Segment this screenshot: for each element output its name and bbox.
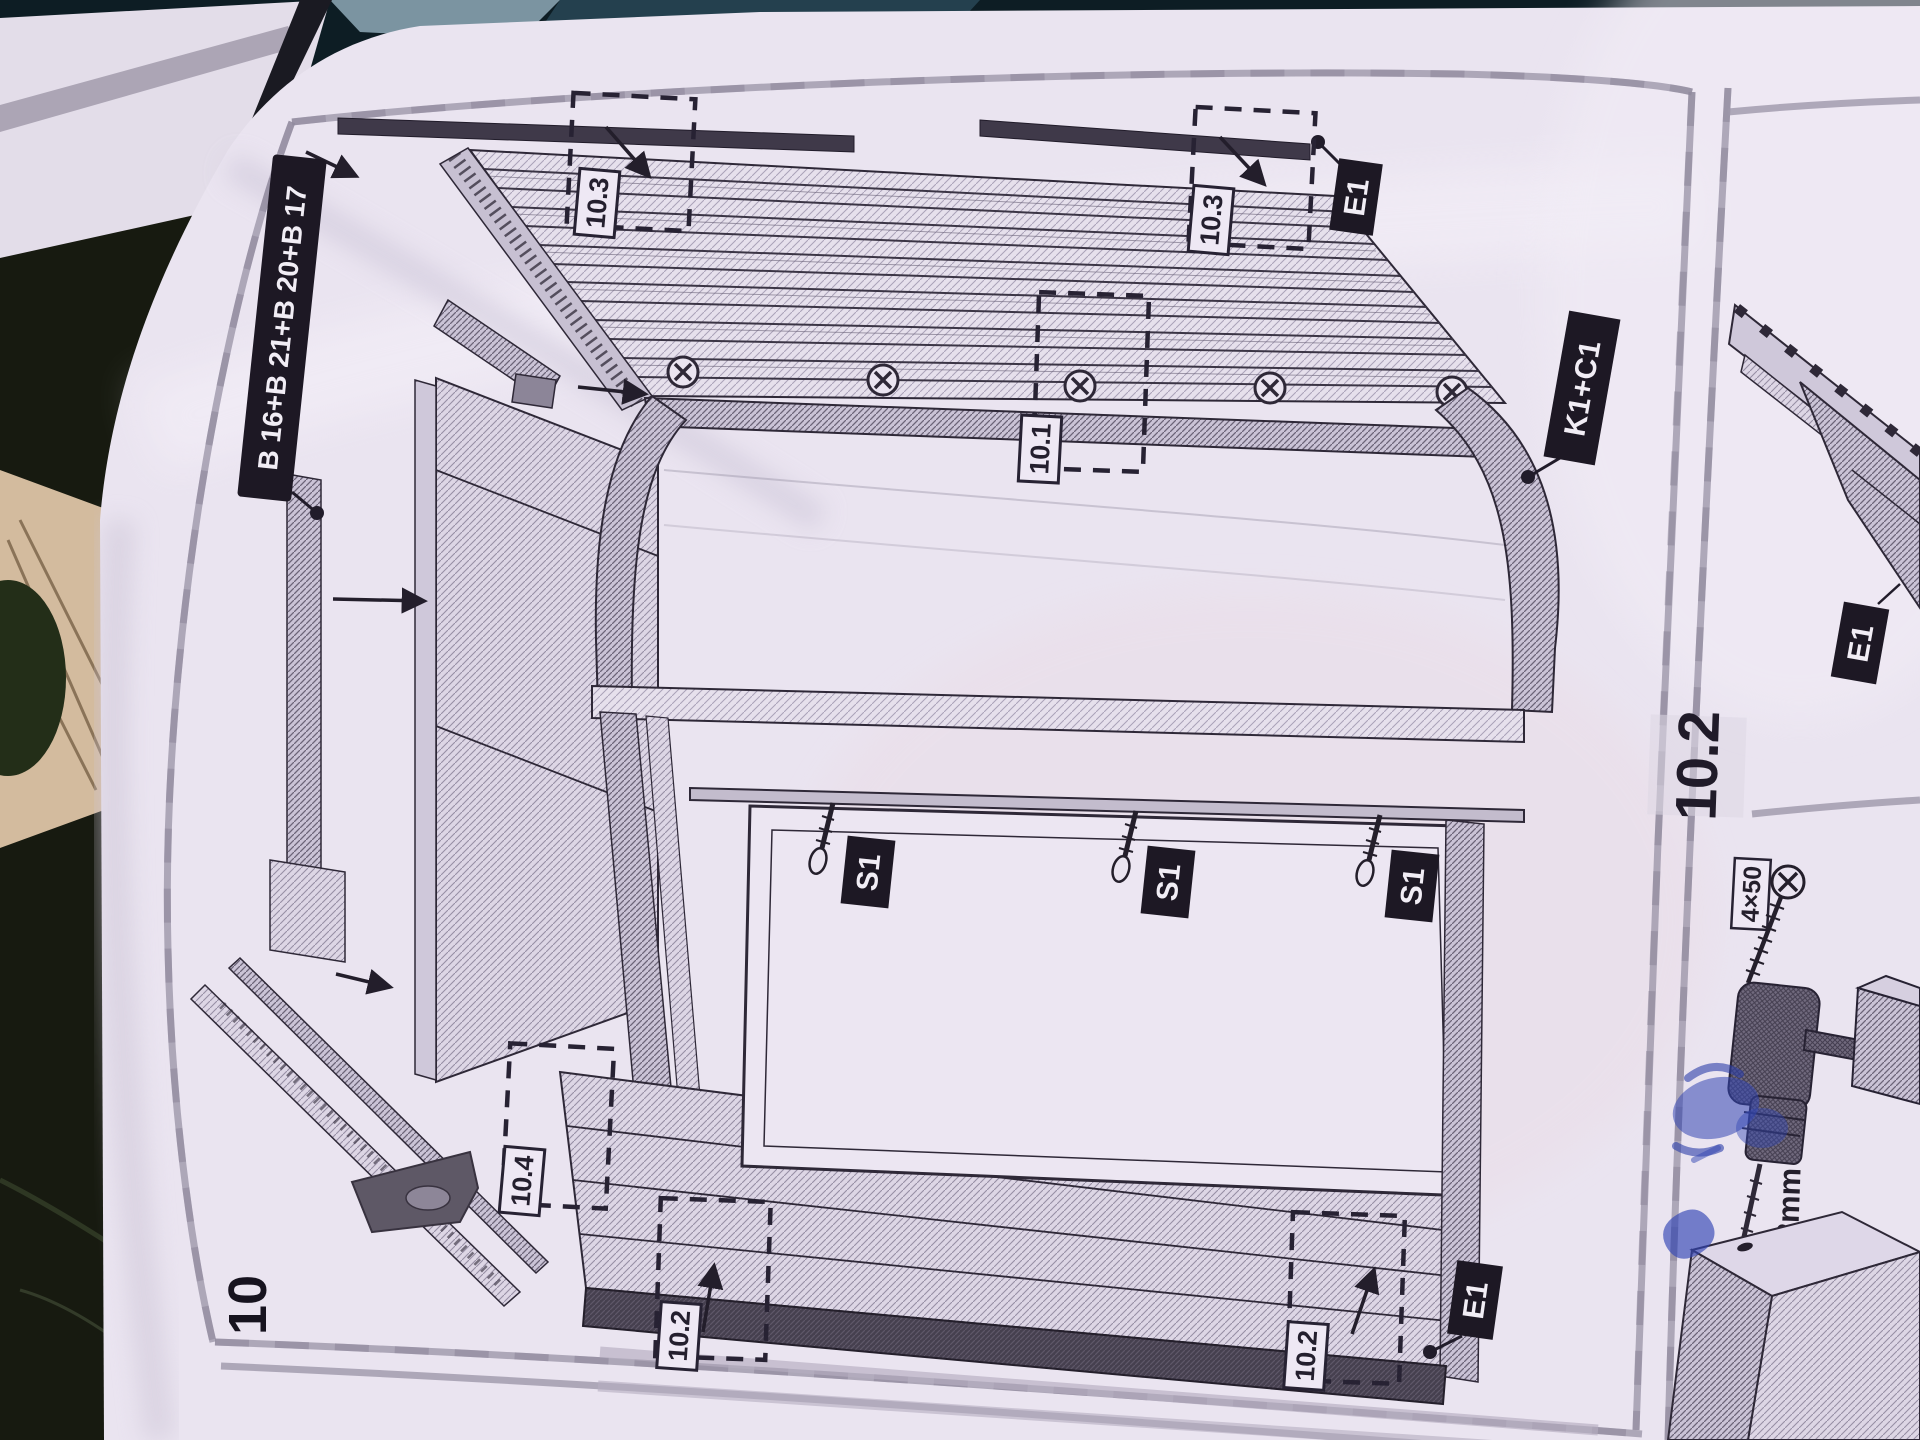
wall-batten — [415, 380, 436, 1080]
detail-ref-10-1: 10.1 — [1018, 415, 1061, 483]
part-label-text: S1 — [851, 852, 888, 893]
detail-ref-text: 10.2 — [1290, 1330, 1323, 1383]
part-label-text: E1 — [1457, 1279, 1495, 1321]
detail-ref-10-4: 10.4 — [499, 1146, 545, 1215]
part-label-text: E1 — [1841, 622, 1880, 665]
screw-size-label: 4×50 — [1731, 858, 1771, 930]
detail-ref-text: 10.3 — [1194, 193, 1228, 246]
detail-ref-text: 10.3 — [580, 176, 614, 229]
part-label-s1-1: S1 — [841, 836, 896, 909]
step-number: 10 — [218, 1275, 278, 1335]
detail-ref-10-3-right: 10.3 — [1188, 185, 1234, 254]
part-label-s1-2: S1 — [1141, 846, 1196, 919]
detail-ref-10-2-left: 10.2 — [657, 1302, 702, 1371]
svg-text:10: 10 — [218, 1275, 278, 1335]
detail-ref-10-2-right: 10.2 — [1284, 1322, 1329, 1391]
detail-ref-10-3-left: 10.3 — [574, 168, 620, 237]
svg-text:4×50: 4×50 — [1736, 865, 1767, 923]
section-header-10-2: 10.2 — [1647, 710, 1747, 822]
detail-ref-text: 10.2 — [663, 1310, 696, 1363]
part-label-text: S1 — [1151, 862, 1188, 903]
detail-ref-text: 10.1 — [1024, 423, 1057, 476]
detail-ref-text: 10.4 — [505, 1154, 539, 1207]
part-label-text: E1 — [1338, 176, 1376, 218]
svg-text:10.2: 10.2 — [1663, 710, 1732, 821]
photo-of-assembly-manual: 10.3 10.3 10.1 10.4 10.2 10.2 B 16+B 21+… — [0, 0, 1920, 1440]
part-label-text: S1 — [1395, 866, 1432, 907]
part-label-s1-3: S1 — [1385, 850, 1440, 923]
